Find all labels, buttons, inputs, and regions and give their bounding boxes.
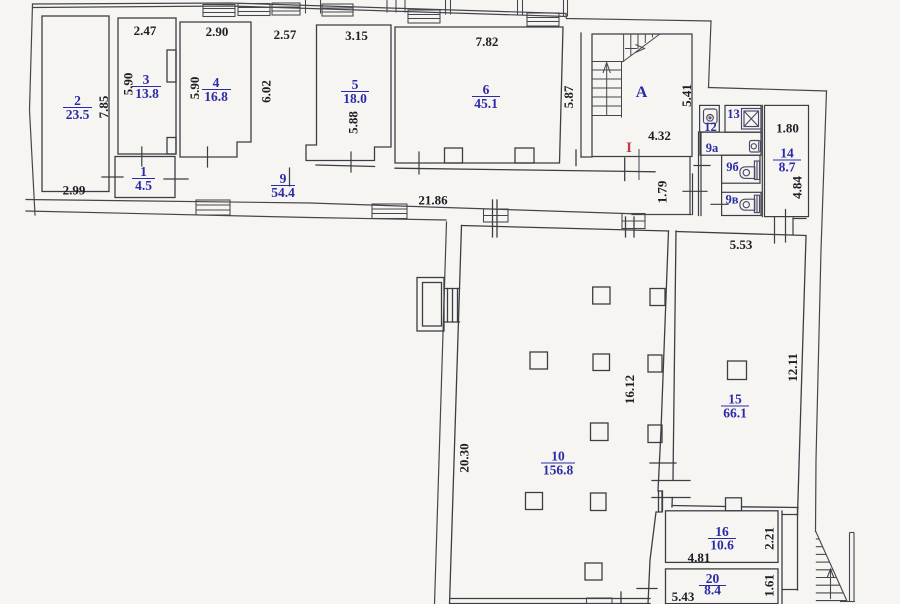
svg-text:18.0: 18.0: [343, 91, 367, 106]
svg-text:1: 1: [140, 164, 147, 179]
svg-text:4.32: 4.32: [648, 128, 671, 143]
svg-text:2: 2: [74, 93, 81, 108]
svg-text:23.5: 23.5: [66, 107, 90, 122]
svg-text:2.90: 2.90: [206, 24, 229, 39]
svg-text:7.82: 7.82: [476, 34, 499, 49]
svg-text:2.99: 2.99: [63, 183, 86, 198]
svg-text:7.85: 7.85: [96, 95, 111, 118]
svg-text:5.43: 5.43: [672, 589, 695, 604]
svg-text:21.86: 21.86: [418, 193, 448, 208]
svg-text:10: 10: [551, 449, 565, 464]
svg-text:6.02: 6.02: [259, 80, 274, 103]
svg-text:5: 5: [352, 77, 359, 92]
svg-text:5.87: 5.87: [561, 85, 576, 108]
svg-text:5.88: 5.88: [346, 111, 361, 134]
svg-text:45.1: 45.1: [474, 96, 498, 111]
svg-text:4.81: 4.81: [688, 550, 711, 565]
svg-text:156.8: 156.8: [543, 463, 574, 478]
svg-text:5.90: 5.90: [121, 73, 136, 96]
svg-text:9б: 9б: [726, 160, 739, 174]
svg-text:8.4: 8.4: [704, 583, 721, 598]
svg-text:66.1: 66.1: [723, 406, 747, 421]
svg-text:4.5: 4.5: [135, 178, 152, 193]
svg-text:5.53: 5.53: [730, 237, 753, 252]
svg-text:1.79: 1.79: [655, 180, 670, 203]
svg-text:13: 13: [727, 107, 740, 121]
svg-text:16.8: 16.8: [204, 89, 228, 104]
svg-text:3.15: 3.15: [345, 28, 368, 43]
svg-text:2.47: 2.47: [134, 23, 157, 38]
svg-text:54.4: 54.4: [271, 185, 295, 200]
svg-text:I: I: [626, 140, 632, 156]
svg-text:4: 4: [213, 75, 220, 90]
svg-text:15: 15: [728, 392, 742, 407]
svg-text:14: 14: [780, 146, 794, 161]
svg-text:1.80: 1.80: [776, 121, 799, 136]
svg-text:9а: 9а: [706, 141, 719, 155]
svg-text:16.12: 16.12: [622, 375, 637, 404]
svg-text:2.57: 2.57: [274, 27, 297, 42]
svg-text:9: 9: [280, 171, 287, 186]
svg-text:6: 6: [483, 82, 490, 97]
svg-text:5.41: 5.41: [679, 84, 694, 107]
svg-text:9в: 9в: [725, 193, 738, 207]
svg-text:5.90: 5.90: [187, 77, 202, 100]
svg-text:13.8: 13.8: [135, 86, 159, 101]
svg-text:20.30: 20.30: [457, 443, 472, 472]
svg-text:3: 3: [143, 72, 150, 87]
svg-text:8.7: 8.7: [779, 160, 796, 175]
svg-text:12.11: 12.11: [785, 353, 800, 382]
svg-text:10.6: 10.6: [710, 538, 734, 553]
svg-text:12: 12: [704, 120, 717, 134]
svg-text:A: A: [636, 84, 648, 101]
svg-text:4.84: 4.84: [790, 176, 805, 199]
svg-text:2.21: 2.21: [762, 527, 777, 550]
svg-text:1.61: 1.61: [762, 574, 777, 597]
